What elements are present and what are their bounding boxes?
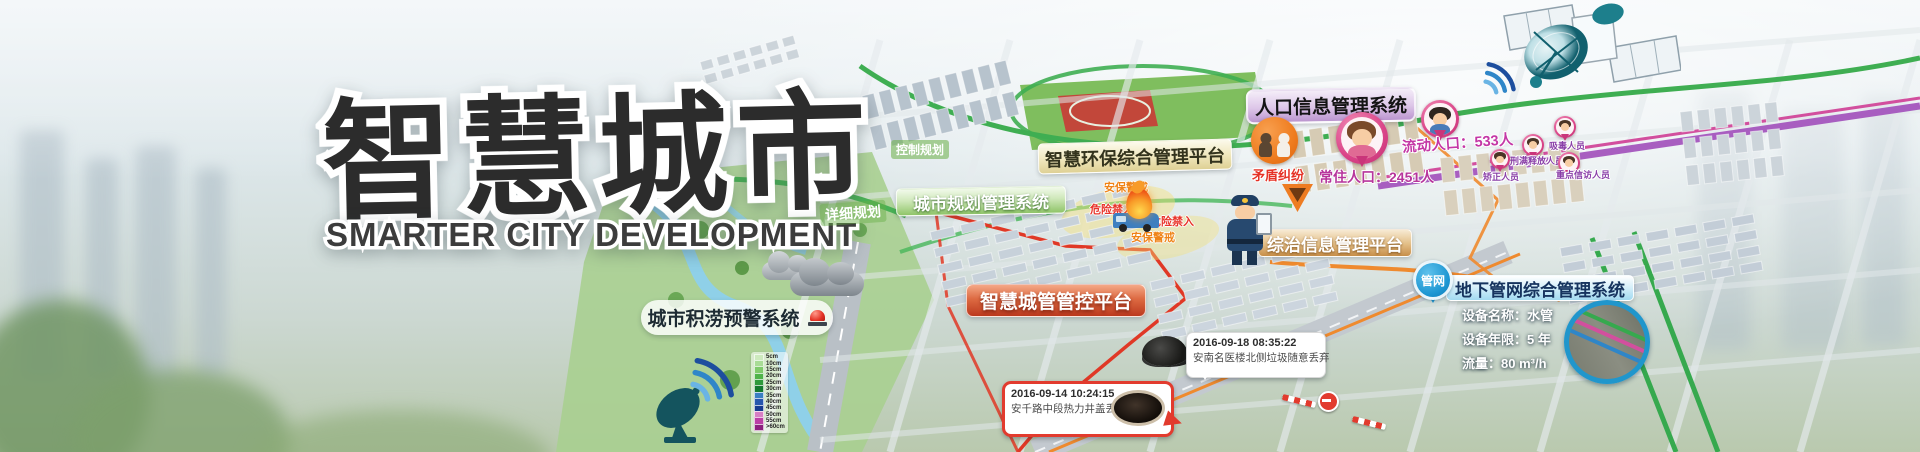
wifi-signal-icon: [684, 344, 736, 404]
label-flood-warning-text: 城市积涝预警系统: [647, 304, 799, 331]
label-city-management-platform: 智慧城管管控平台: [966, 284, 1146, 317]
page-subtitle: SMARTER CITY DEVELOPMENT: [326, 216, 857, 254]
police-officer-icon: [1220, 195, 1270, 265]
flood-depth-legend: 5cm10cm15cm20cm25cm30cm35cm40cm45cm50cm5…: [751, 352, 788, 433]
manhole-photo: [1111, 390, 1165, 426]
garbage-pile-photo: [1142, 336, 1188, 366]
person-pin-icon: [1554, 116, 1576, 138]
incident-description: 安南名医楼北侧垃圾随意丢弃: [1193, 351, 1319, 365]
smart-city-banner: 智慧城市 SMARTER CITY DEVELOPMENT 城市积涝预警系统 城…: [0, 0, 1920, 452]
tag-pin-label: 重点信访人员: [1556, 168, 1610, 181]
tag-security-alert-2: 安保警戒: [1131, 229, 1175, 245]
incident-callout-garbage: 2016-09-18 08:35:22 安南名医楼北侧垃圾随意丢弃: [1186, 332, 1326, 378]
person-pin-icon: [1522, 134, 1544, 156]
label-governance-platform: 综治信息管理平台: [1258, 229, 1412, 257]
label-flood-warning-system: 城市积涝预警系统: [641, 300, 833, 335]
label-urban-planning-system: 城市规划管理系统: [896, 186, 1066, 217]
person-pin-icon: [1490, 149, 1510, 169]
pipe-flow-rate: 流量：80 m³/h: [1462, 353, 1547, 372]
incident-time: 2016-09-18 08:35:22: [1193, 336, 1319, 351]
label-environment-platform: 智慧环保综合管理平台: [1038, 138, 1233, 174]
tag-pin-label: 矫正人员: [1483, 170, 1519, 183]
tag-pin-label: 吸毒人员: [1549, 139, 1585, 152]
incident-callout-manhole: 2016-09-14 10:24:15 安千路中段热力井盖丢失: [1002, 381, 1174, 437]
pipe-device-age: 设备年限：5 年: [1462, 329, 1551, 348]
no-entry-sign-icon: [1318, 391, 1339, 412]
dispute-icon: [1251, 117, 1298, 164]
legend-item: >60cm: [754, 424, 785, 430]
rain-cloud-icon: [790, 272, 864, 296]
resident-population-pin-icon: [1336, 112, 1388, 164]
tag-resident-population: 常住人口：2451人: [1319, 167, 1434, 187]
siren-icon: [808, 309, 827, 326]
wifi-signal-icon: [1474, 52, 1522, 96]
tag-pin-label: 刑满释放人员: [1510, 154, 1564, 167]
pipe-closeup-photo: [1564, 300, 1650, 384]
label-pipe-network-system: 地下管网综合管理系统: [1446, 275, 1634, 301]
pipe-network-pin-icon: 管网: [1413, 260, 1453, 300]
pipe-pin-label: 管网: [1421, 272, 1445, 289]
tag-detailed-planning: 详细规划: [819, 200, 886, 227]
pipe-device-name: 设备名称：水管: [1462, 305, 1553, 324]
tag-dispute: 矛盾纠纷: [1252, 165, 1304, 184]
tag-control-planning: 控制规划: [891, 140, 949, 159]
satellite-icon: [1496, 0, 1681, 92]
